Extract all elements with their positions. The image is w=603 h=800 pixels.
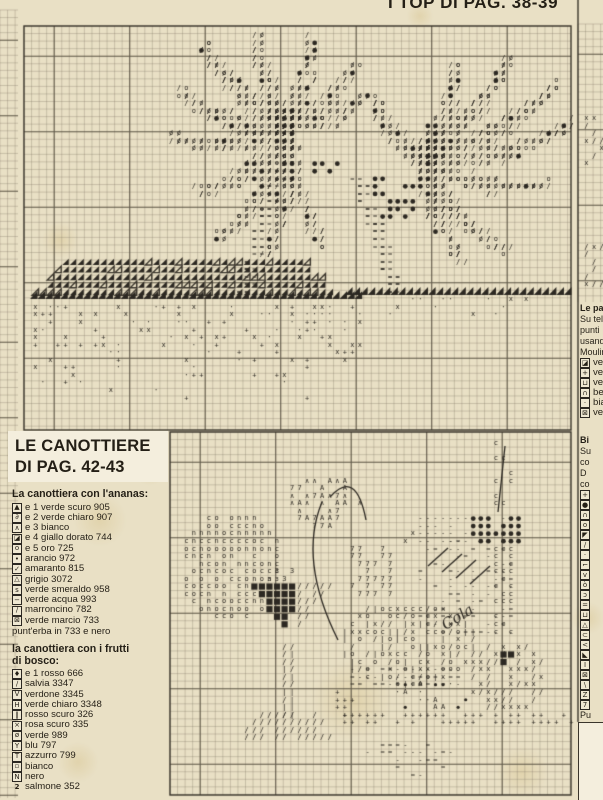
legend-frutti: la canottiera con i frutti di bosco: ♦e …: [12, 644, 167, 793]
stitch-symbol-icon: Z: [580, 690, 590, 700]
blank-corner-box: [578, 722, 603, 800]
stitch-symbol-icon: ∧: [12, 523, 22, 533]
right-column-text-line: co: [580, 457, 603, 468]
right-block2-item: I: [580, 660, 603, 670]
stitch-symbol-icon: −: [12, 595, 22, 605]
stitch-symbol-icon: ⊠: [580, 408, 590, 418]
right-block2-item: ⊠: [580, 670, 603, 680]
stitch-symbol-icon: ∕: [12, 679, 22, 689]
stitch-symbol-icon: ◣: [580, 650, 590, 660]
magazine-page: I TOP DI PAG. 38-39 LE CANOTTIERE DI PAG…: [0, 0, 603, 800]
right-column-block2-text: BiSucoDco: [580, 435, 603, 490]
right-column-tail-line: Pu: [580, 710, 603, 721]
right-column-text-line: co: [580, 479, 603, 490]
stitch-symbol-icon: •: [12, 554, 22, 564]
stitch-symbol-icon: ●: [580, 500, 590, 510]
stitch-symbol-icon: ◪: [12, 534, 22, 544]
legend-ananas-items: ▲e 1 verde scuro 905∂e 2 verde chiaro 90…: [12, 503, 167, 627]
right-block2-item: ∕: [580, 540, 603, 550]
stitch-symbol-icon: V: [12, 690, 22, 700]
stitch-symbol-icon: ×: [12, 721, 22, 731]
right-block2-item: ◤: [580, 530, 603, 540]
stitch-symbol-icon: I: [580, 660, 590, 670]
right-block1-label: verd: [593, 408, 603, 418]
right-block2-item: ∩: [580, 510, 603, 520]
right-column-text-line: Bi: [580, 435, 603, 446]
section-heading-line1: LE CANOTTIERE: [15, 436, 161, 457]
stitch-symbol-icon: ⌐: [580, 560, 590, 570]
right-block2-item: ⌐: [580, 560, 603, 570]
stitch-symbol-icon: ⊔: [580, 378, 590, 388]
stitch-symbol-icon: ·: [580, 550, 590, 560]
right-block2-item: ɔ: [580, 590, 603, 600]
stitch-symbol-icon: ø: [12, 731, 22, 741]
legend-ananas-title: La canottiera con l'ananas:: [12, 489, 167, 501]
legend-ananas-item: ⊠verde marcio 733: [12, 616, 167, 626]
stitch-symbol-icon: ⊠: [12, 616, 22, 626]
legend-frutti-item: 2salmone 352: [12, 782, 167, 792]
right-column-text-line: Le pa: [580, 303, 603, 314]
right-block2-item: △: [580, 620, 603, 630]
stitch-symbol-icon: v: [580, 570, 590, 580]
right-block2-item: 7: [580, 700, 603, 710]
stitch-symbol-icon: ⊂: [580, 630, 590, 640]
right-column-block1: Le paSu telepuntiusandMoulin ◪verd+verd⊔…: [580, 303, 603, 418]
stitch-symbol-icon: ∂: [12, 513, 22, 523]
right-block2-item: ●: [580, 500, 603, 510]
stitch-symbol-icon: ∕: [580, 540, 590, 550]
right-column-block1-items: ◪verd+verd⊔verd∩beig·bian⊠verd: [580, 358, 603, 418]
stitch-symbol-icon: ɔ: [580, 590, 590, 600]
stitch-symbol-icon: ♦: [12, 669, 22, 679]
right-block2-item: <: [580, 640, 603, 650]
right-block2-item: o: [580, 520, 603, 530]
right-block2-item: v: [580, 570, 603, 580]
stitch-symbol-icon: ✓: [12, 564, 22, 574]
right-block1-item: ⊠verd: [580, 408, 603, 418]
right-column-block2-items: +●∩o◤∕·⌐vòɔ=⊔△⊂<◣I⊠\Z7: [580, 490, 603, 710]
stitch-symbol-icon: o: [12, 544, 22, 554]
stitch-symbol-icon: △: [580, 620, 590, 630]
stitch-symbol-icon: s: [12, 585, 22, 595]
stitch-symbol-icon: 7: [580, 700, 590, 710]
stitch-symbol-icon: ò: [580, 580, 590, 590]
stitch-symbol-icon: ∕: [12, 606, 22, 616]
right-column-text-line: Su tele: [580, 314, 603, 325]
stitch-symbol-icon: N: [12, 772, 22, 782]
right-block2-item: ◣: [580, 650, 603, 660]
stitch-symbol-icon: +: [580, 490, 590, 500]
legend-frutti-label: salmone 352: [25, 782, 80, 792]
legend-frutti-items: ♦e 1 rosso 666∕salvia 3347Vverdone 3345H…: [12, 669, 167, 793]
stitch-symbol-icon: ·: [580, 398, 590, 408]
right-block2-item: ·: [580, 550, 603, 560]
stitch-symbol-icon: H: [12, 700, 22, 710]
stitch-symbol-icon: ∩: [580, 388, 590, 398]
legend-ananas-footer: punt'erba in 733 e nero: [12, 627, 167, 637]
stitch-symbol-icon: =: [580, 600, 590, 610]
stitch-symbol-icon: ▲: [12, 503, 22, 513]
stitch-symbol-icon: Y: [12, 741, 22, 751]
stitch-symbol-icon: ◤: [580, 530, 590, 540]
legend-frutti-title1: la canottiera con i frutti: [12, 644, 167, 656]
stitch-symbol-icon: T: [12, 752, 22, 762]
page-title: I TOP DI PAG. 38-39: [388, 0, 558, 13]
stitch-symbol-icon: ⊔: [580, 610, 590, 620]
legend-ananas: La canottiera con l'ananas: ▲e 1 verde s…: [12, 489, 167, 637]
right-column-text-line: punti: [580, 325, 603, 336]
right-block2-item: =: [580, 600, 603, 610]
legend-frutti-title2: di bosco:: [12, 656, 167, 668]
stitch-symbol-icon: \: [580, 680, 590, 690]
stitch-symbol-icon: ▫: [12, 762, 22, 772]
right-column-block1-text: Le paSu telepuntiusandMoulin: [580, 303, 603, 358]
stitch-symbol-icon: △: [12, 575, 22, 585]
right-column-block2: BiSucoDco +●∩o◤∕·⌐vòɔ=⊔△⊂<◣I⊠\Z7 Pune: [580, 435, 603, 732]
right-block2-item: ò: [580, 580, 603, 590]
stitch-symbol-icon: ∩: [580, 510, 590, 520]
right-column-text-line: Su: [580, 446, 603, 457]
right-block2-item: ⊂: [580, 630, 603, 640]
stitch-symbol-icon: ⊠: [580, 670, 590, 680]
right-column-text-line: usand: [580, 336, 603, 347]
stitch-symbol-icon: +: [580, 368, 590, 378]
section-heading-line2: DI PAG. 42-43: [15, 457, 161, 478]
stitch-symbol-icon: <: [580, 640, 590, 650]
stitch-symbol-icon: ◪: [580, 358, 590, 368]
right-block2-item: ⊔: [580, 610, 603, 620]
stitch-symbol-icon: ‖: [12, 710, 22, 720]
legend-ananas-label: verde marcio 733: [25, 616, 99, 626]
stitch-symbol-icon: o: [580, 520, 590, 530]
right-block2-item: Z: [580, 690, 603, 700]
stitch-symbol-icon: 2: [12, 782, 22, 792]
right-column-text-line: D: [580, 468, 603, 479]
right-block2-item: \: [580, 680, 603, 690]
section-heading: LE CANOTTIERE DI PAG. 42-43: [8, 431, 168, 482]
right-block2-item: +: [580, 490, 603, 500]
